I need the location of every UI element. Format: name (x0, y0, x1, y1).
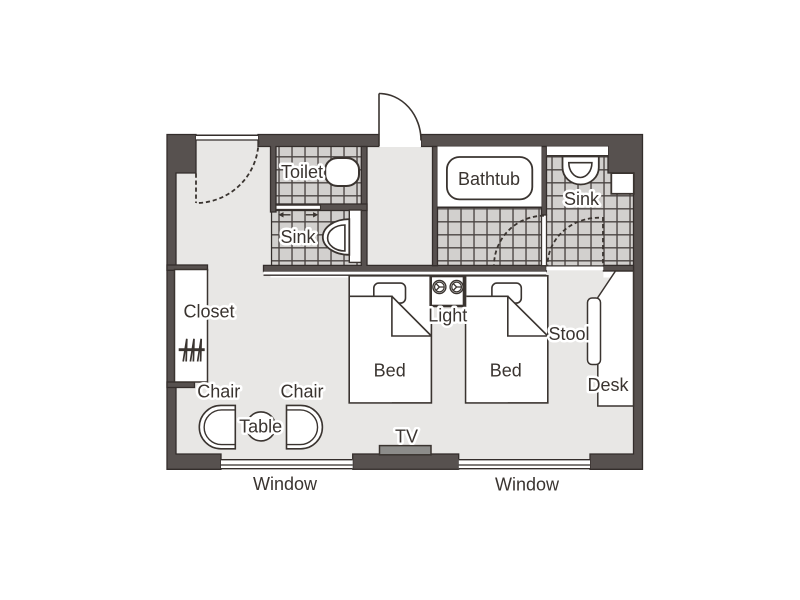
svg-text:Bed: Bed (490, 361, 522, 381)
svg-text:Bathtub: Bathtub (458, 169, 520, 189)
svg-text:Sink: Sink (564, 189, 600, 209)
svg-text:Bed: Bed (374, 361, 406, 381)
svg-text:Stool: Stool (548, 324, 589, 344)
svg-text:Chair: Chair (280, 382, 323, 402)
svg-text:Chair: Chair (197, 382, 240, 402)
svg-text:Sink: Sink (280, 227, 316, 247)
svg-text:Window: Window (495, 475, 560, 495)
svg-text:Window: Window (253, 474, 318, 494)
svg-text:Table: Table (239, 417, 282, 437)
svg-text:Toilet: Toilet (281, 162, 323, 182)
svg-text:TV: TV (395, 427, 418, 447)
svg-text:Light: Light (428, 306, 467, 326)
svg-text:Desk: Desk (587, 375, 629, 395)
svg-text:Closet: Closet (183, 302, 234, 322)
